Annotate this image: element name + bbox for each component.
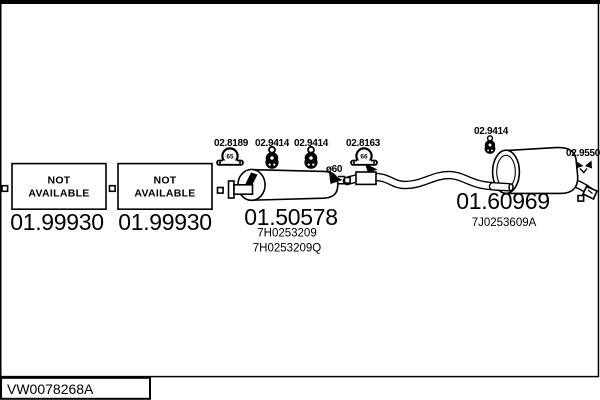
not-available-text-2-line2: AVAILABLE [134,188,195,200]
exhaust-tip-icon [576,161,592,173]
not-available-text-2-line1: NOT [153,175,176,187]
hanger-icon-2 [304,147,317,169]
middle-muffler-inlet-flange [229,181,235,198]
clamp-mid-size: 66 [360,154,368,161]
tailpipe-tip [583,187,597,200]
connector-square-before-muffler [218,188,224,194]
pipe-sleeve [356,172,376,184]
diameter-label: ø60 [326,164,343,175]
oem-number-middle-1: 7H0253209 [257,228,316,240]
connector-square-between-boxes [110,186,116,192]
middle-muffler-inlet-pipe [234,185,253,194]
part-code-center-pipe[interactable]: 01.99930 [118,209,212,235]
exhaust-diagram-page: NOT AVAILABLE 01.99930 NOT AVAILABLE 01.… [0,0,600,400]
callout-code-clamp-front[interactable]: 02.8189 [214,138,249,149]
connector-square-rear [578,196,584,202]
oem-number-rear: 7J0253609A [472,217,537,229]
clamp-front-size: 65 [226,154,234,161]
callout-code-hanger-rear[interactable]: 02.9414 [474,126,509,137]
part-code-middle-muffler[interactable]: 01.50578 [244,204,338,230]
connector-square-left-edge [2,186,8,192]
diagram-reference-code: VW0078268A [7,381,94,397]
oem-number-middle-2: 7H0253209Q [253,243,321,255]
hanger-rear-icon [485,136,496,154]
not-available-text-1-line2: AVAILABLE [28,188,89,200]
not-available-text-1-line1: NOT [47,175,70,187]
exhaust-diagram-canvas: NOT AVAILABLE 01.99930 NOT AVAILABLE 01.… [0,0,600,400]
hanger-icon-1 [265,147,278,169]
connector-square-outlet [345,178,351,184]
callout-code-tail-tip[interactable]: 02.9550 [566,148,600,159]
part-code-rear-muffler[interactable]: 01.60969 [456,188,550,214]
part-code-front-pipe[interactable]: 01.99930 [10,209,104,235]
